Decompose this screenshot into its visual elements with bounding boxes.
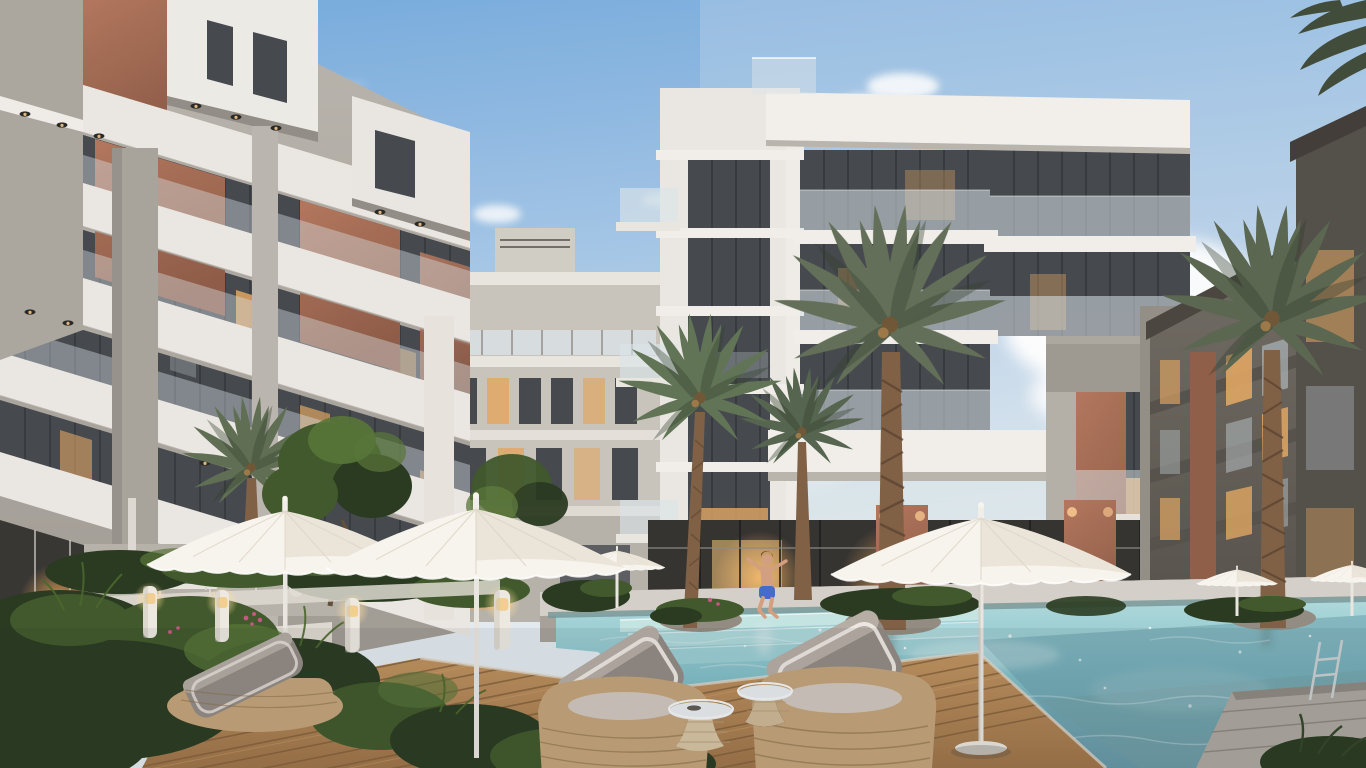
rendering-canvas (0, 0, 1366, 768)
courtyard-rendering (0, 0, 1366, 768)
